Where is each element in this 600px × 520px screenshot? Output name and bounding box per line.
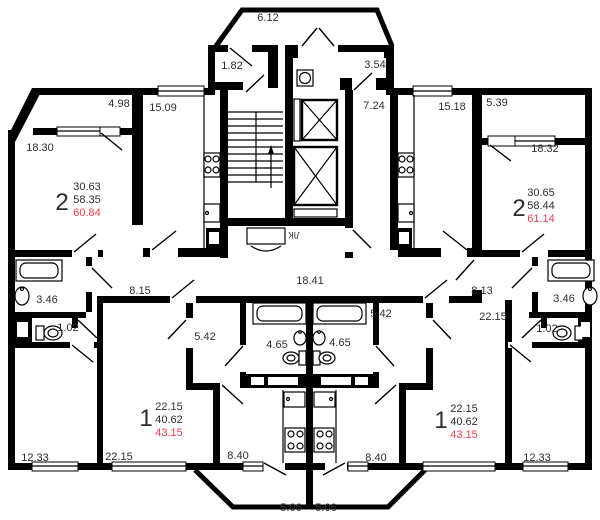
label-corridor-right-area: 7.24: [363, 100, 384, 112]
vent-right: [399, 232, 409, 244]
label-bath-left-area: 3.46: [36, 294, 57, 306]
sink-kitchen840-left: [284, 392, 305, 407]
apt-right-2r-number: 2: [512, 195, 525, 222]
elevator-shafts: [294, 99, 337, 217]
window-kitchen840-left: [243, 462, 263, 471]
sink-kitchen-left: [204, 204, 220, 222]
label-corridor-area: 18.41: [296, 275, 324, 287]
label-balcony506-left-area: 5.06: [280, 502, 301, 514]
bathtub-1r-right: [313, 303, 366, 324]
stove-kitchen840-right: [314, 428, 334, 452]
apt-left-1r-living: 22.15: [155, 401, 183, 413]
label-kitchen840-right-area: 8.40: [365, 452, 386, 464]
bathtub-left: [16, 260, 62, 281]
label-hall-left-area: 8.15: [129, 285, 150, 297]
label-bath465-right-area: 4.65: [329, 337, 350, 349]
apt-right-1r-number: 1: [434, 407, 447, 434]
bathtub-1r-left: [253, 303, 306, 324]
apt-left-2r-total-balcony: 60.84: [73, 207, 101, 219]
window-kitchen-right: [413, 86, 452, 96]
apt-right-1r-living: 22.15: [450, 403, 478, 415]
sink-left: [15, 287, 29, 305]
window-room2215-left: [112, 462, 186, 471]
label-wc-left-area: 1.02: [57, 322, 78, 334]
window-room1830: [57, 127, 100, 136]
label-wc-right-area: 1.02: [536, 323, 557, 335]
label-room2215-left-area: 22.15: [105, 451, 133, 463]
sink-kitchen-right: [398, 204, 414, 222]
label-hall542-left-area: 5.42: [194, 331, 215, 343]
apt-right-1r-total: 40.62: [450, 416, 478, 428]
label-room1233-right-area: 12.33: [523, 452, 551, 464]
label-kitchen840-left-area: 8.40: [227, 450, 248, 462]
label-room1830-area: 18.30: [26, 142, 54, 154]
apt-right-1r-total-balcony: 43.15: [450, 429, 478, 441]
label-hall-right-area: 8.13: [471, 285, 492, 297]
stove-kitchen-left: [204, 153, 220, 177]
toilet-1r-right: [313, 351, 335, 365]
stair-direction-arrow: [268, 145, 274, 154]
label-bath-right-area: 3.46: [553, 293, 574, 305]
staircase: [228, 112, 283, 188]
apt-left-2r-number: 2: [55, 189, 68, 216]
sink-right: [583, 287, 597, 305]
balcony-door-right: [488, 136, 515, 146]
washer-right: [581, 322, 590, 337]
label-stairwell: ЛК: [288, 230, 300, 240]
stove-kitchen-right: [398, 153, 414, 177]
floorplan-drawing: 6.12 1.82 3.54 4.98 15.09 7.24 15.18 5.3…: [0, 0, 600, 520]
label-room2215-right-area: 22.15: [479, 311, 507, 323]
apt-right-2r-total: 58.44: [527, 200, 555, 212]
window-kitchen-left: [158, 86, 204, 96]
label-lobby-area: 3.54: [364, 59, 385, 71]
label-balcony-right-area: 5.39: [486, 97, 507, 109]
apt-left-1r-total: 40.62: [155, 414, 183, 426]
sink-1r-right: [313, 331, 325, 345]
vent-left: [209, 232, 219, 244]
washer-left: [17, 322, 28, 337]
label-room1233-left-area: 12.33: [21, 452, 49, 464]
window-room2215-right: [423, 462, 495, 471]
label-kitchen-right-area: 15.18: [438, 101, 466, 113]
label-room1832-area: 18.32: [531, 143, 559, 155]
apt-left-1r-total-balcony: 43.15: [155, 427, 183, 439]
stair-landing-hatch: [247, 228, 285, 251]
apt-right-2r-total-balcony: 61.14: [527, 213, 555, 225]
apt-right-2r-living: 30.65: [527, 187, 555, 199]
label-porch-area: 6.12: [257, 12, 278, 24]
sink-kitchen840-right: [314, 392, 335, 407]
elevator-small: [302, 100, 337, 140]
apt-left-2r-living: 30.63: [73, 181, 101, 193]
label-kitchen-left-area: 15.09: [149, 102, 177, 114]
label-bath465-left-area: 4.65: [266, 339, 287, 351]
label-balcony506-right-area: 5.06: [315, 502, 336, 514]
elevator-large: [294, 147, 337, 205]
floorplan-page: 6.12 1.82 3.54 4.98 15.09 7.24 15.18 5.3…: [0, 0, 600, 520]
label-tambour-area: 1.82: [221, 60, 242, 72]
bathtub-right: [548, 260, 594, 281]
entrance-porch-outline: [216, 10, 392, 46]
apt-left-1r-number: 1: [139, 405, 152, 432]
stove-kitchen840-left: [285, 428, 305, 452]
toilet-1r-left: [283, 351, 306, 365]
apt-left-2r-total: 58.35: [73, 194, 101, 206]
sink-1r-left: [294, 331, 306, 345]
garbage-chute: [297, 70, 313, 86]
label-balcony-left-area: 4.98: [108, 98, 129, 110]
label-hall542-right-area: 5.42: [370, 308, 391, 320]
